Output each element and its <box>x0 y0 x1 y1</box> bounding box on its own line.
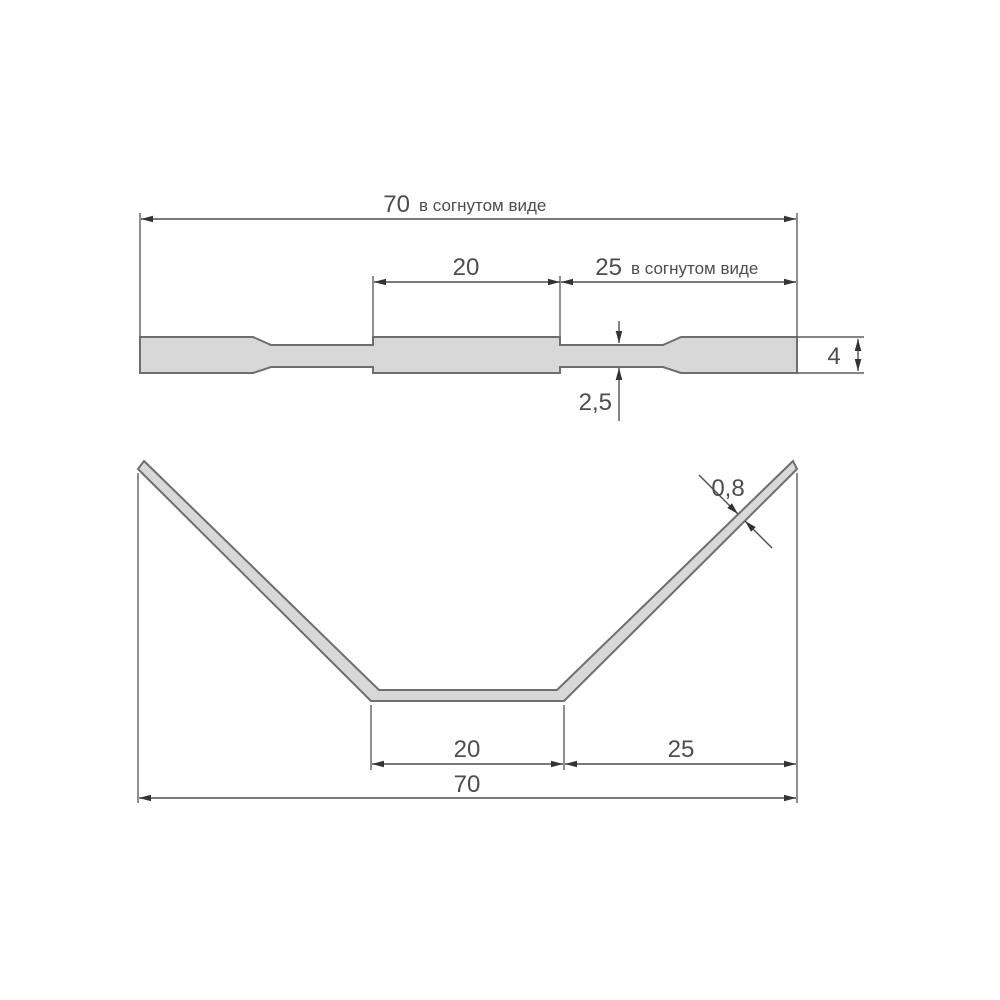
bent-profile-view: 0,8 20 25 70 <box>138 461 797 803</box>
dim-flat-end-height-value: 4 <box>827 343 840 370</box>
dim-flat-middle-value: 20 <box>453 254 480 281</box>
dim-flat-right-note: в согнутом виде <box>631 259 758 278</box>
dim-bent-thickness: 0,8 <box>699 475 772 548</box>
dim-bent-thickness-value: 0,8 <box>711 475 744 502</box>
dim-flat-right-section: 25 в согнутом виде <box>561 254 796 282</box>
bent-strip-shape <box>138 461 797 701</box>
dim-bent-right-projection: 25 <box>565 736 796 764</box>
dim-bent-bottom-section: 20 <box>372 736 563 764</box>
dim-flat-thin-height-value: 2,5 <box>579 389 612 416</box>
dim-bent-bottom-value: 20 <box>454 736 481 763</box>
dim-flat-overall-value: 70 <box>383 191 410 218</box>
dim-bent-overall-width: 70 <box>139 771 796 798</box>
dim-flat-overall-length: 70 в согнутом виде <box>141 191 796 219</box>
dim-bent-overall-value: 70 <box>454 771 481 798</box>
flat-strip-shape <box>140 337 797 373</box>
dim-flat-overall-note: в согнутом виде <box>419 196 546 215</box>
dim-flat-middle-section: 20 <box>374 254 560 282</box>
dim-bent-right-value: 25 <box>668 736 695 763</box>
technical-drawing-canvas: 70 в согнутом виде 20 25 в согнутом виде… <box>0 0 1000 1000</box>
dim-flat-thin-height: 2,5 <box>579 321 619 421</box>
dim-flat-end-height: 4 <box>827 339 858 371</box>
flat-profile-view: 70 в согнутом виде 20 25 в согнутом виде… <box>140 191 864 421</box>
dim-flat-right-value: 25 <box>595 254 622 281</box>
